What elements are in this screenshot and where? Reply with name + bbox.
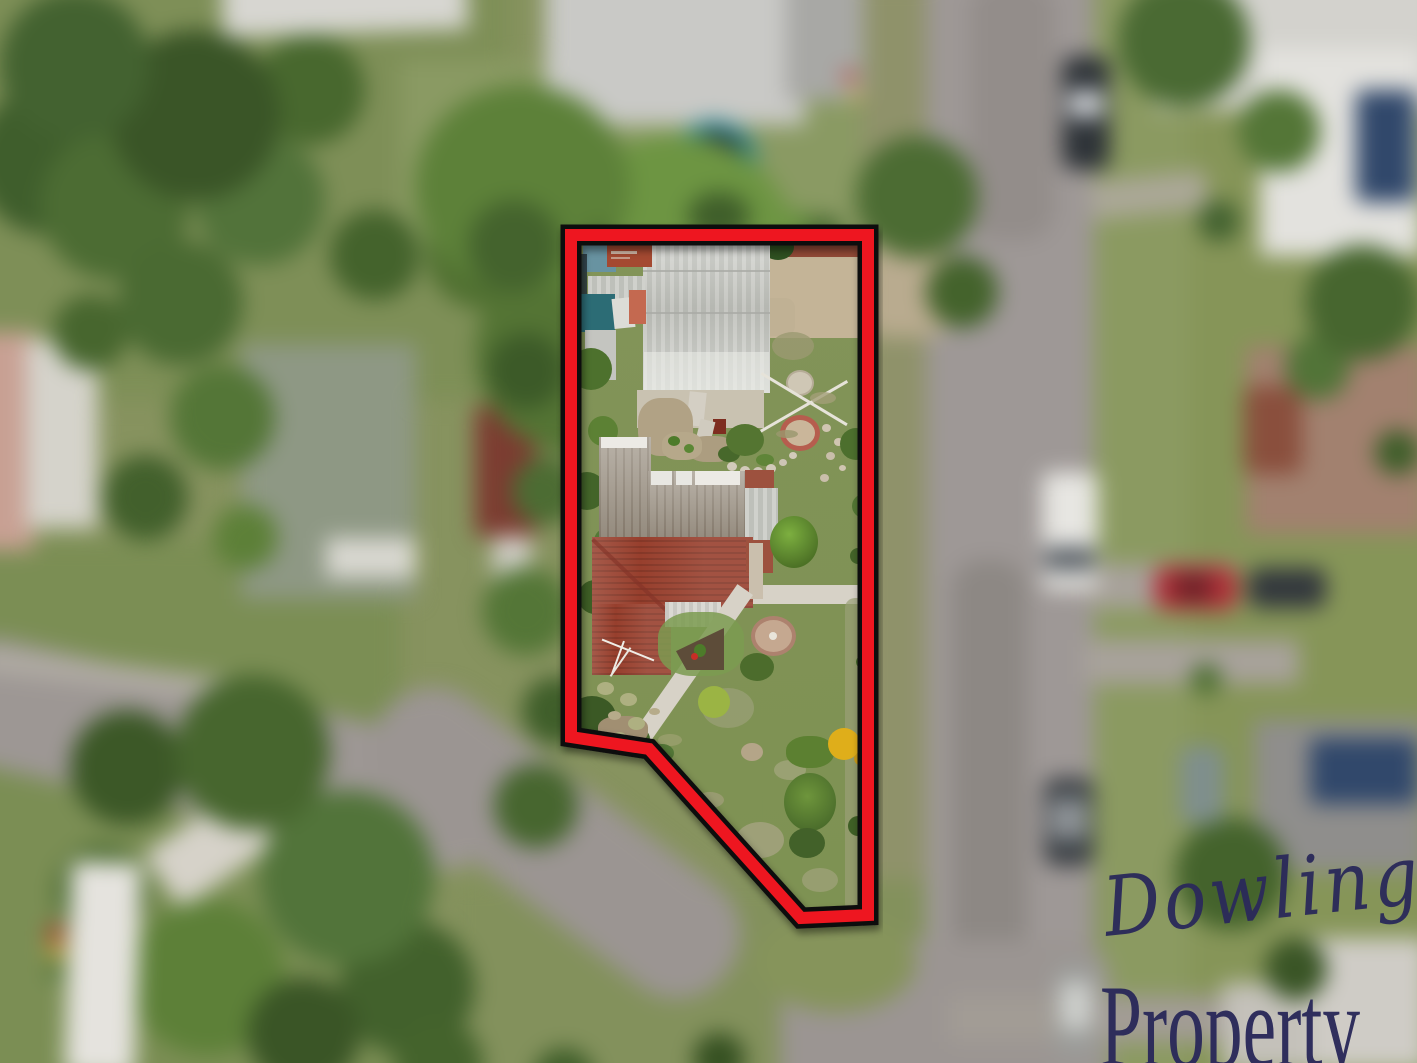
van	[1042, 472, 1098, 590]
driveway	[1084, 640, 1299, 684]
van-cab	[1044, 546, 1096, 572]
house-roof-weathered	[599, 437, 651, 543]
shed-roof-red	[475, 405, 537, 537]
garage-roof	[786, 0, 864, 100]
bush	[698, 686, 730, 718]
car-windshield	[1174, 573, 1212, 602]
flower-red	[691, 653, 698, 660]
tree-row	[468, 200, 560, 292]
solar-panels	[1356, 90, 1416, 202]
tree-cluster	[118, 240, 243, 365]
bin-yellow	[48, 944, 63, 959]
brand-watermark-serif: Property	[1100, 968, 1360, 1063]
roof-seam	[643, 270, 770, 272]
sign-line	[611, 257, 630, 259]
skylight	[695, 471, 740, 485]
skylight	[651, 471, 672, 485]
edge-bushes	[840, 428, 872, 460]
dirt-spot	[741, 743, 763, 761]
yellow-tree	[828, 728, 860, 760]
car	[1180, 746, 1224, 824]
stone-dots	[822, 424, 831, 432]
skylight	[601, 437, 647, 448]
solar-panels	[1310, 738, 1417, 804]
garden-bushes	[726, 424, 764, 456]
chimney	[1244, 386, 1302, 474]
rock-garden	[662, 432, 702, 460]
bush	[789, 828, 825, 858]
bush-large	[784, 773, 836, 831]
road-wear-strip	[970, 0, 1055, 240]
bush	[786, 736, 834, 768]
house-roof	[90, 148, 138, 248]
stepping-stones	[727, 462, 737, 471]
building-roof	[26, 340, 98, 528]
roof-highlight	[644, 352, 769, 393]
shed-roof-white	[493, 536, 531, 586]
side-path	[749, 543, 763, 599]
birdbath	[769, 632, 777, 640]
bush	[740, 653, 774, 681]
bin-red	[48, 926, 63, 941]
car-windshield	[1068, 90, 1104, 118]
caravan	[64, 861, 141, 1063]
plant	[684, 444, 694, 453]
play-equipment	[850, 90, 861, 101]
car-windshield	[1060, 982, 1092, 1030]
roof-seam	[643, 312, 770, 314]
brick-edge	[745, 470, 774, 489]
garden-oval	[780, 415, 820, 451]
sign-line	[611, 251, 637, 254]
house-eave	[326, 538, 416, 578]
garden-bushes	[570, 348, 612, 390]
tree-cluster	[1305, 245, 1417, 360]
skylight	[676, 471, 692, 485]
car	[1248, 568, 1326, 608]
dirt-spot	[598, 716, 648, 744]
teal-tarp	[574, 294, 615, 332]
play-equipment	[843, 70, 856, 83]
rust-sign	[607, 245, 652, 267]
car-roof	[1050, 798, 1088, 840]
tree-cluster	[175, 675, 330, 830]
dry-grass	[772, 332, 814, 360]
bin-green	[48, 962, 63, 977]
roof-edge	[629, 290, 646, 324]
plant	[668, 436, 680, 446]
bush-bright	[770, 516, 818, 568]
aerial-photo: Dowling Property	[0, 0, 1417, 1063]
worn-grass-spots	[597, 682, 614, 695]
grass-pocket	[756, 912, 916, 1012]
